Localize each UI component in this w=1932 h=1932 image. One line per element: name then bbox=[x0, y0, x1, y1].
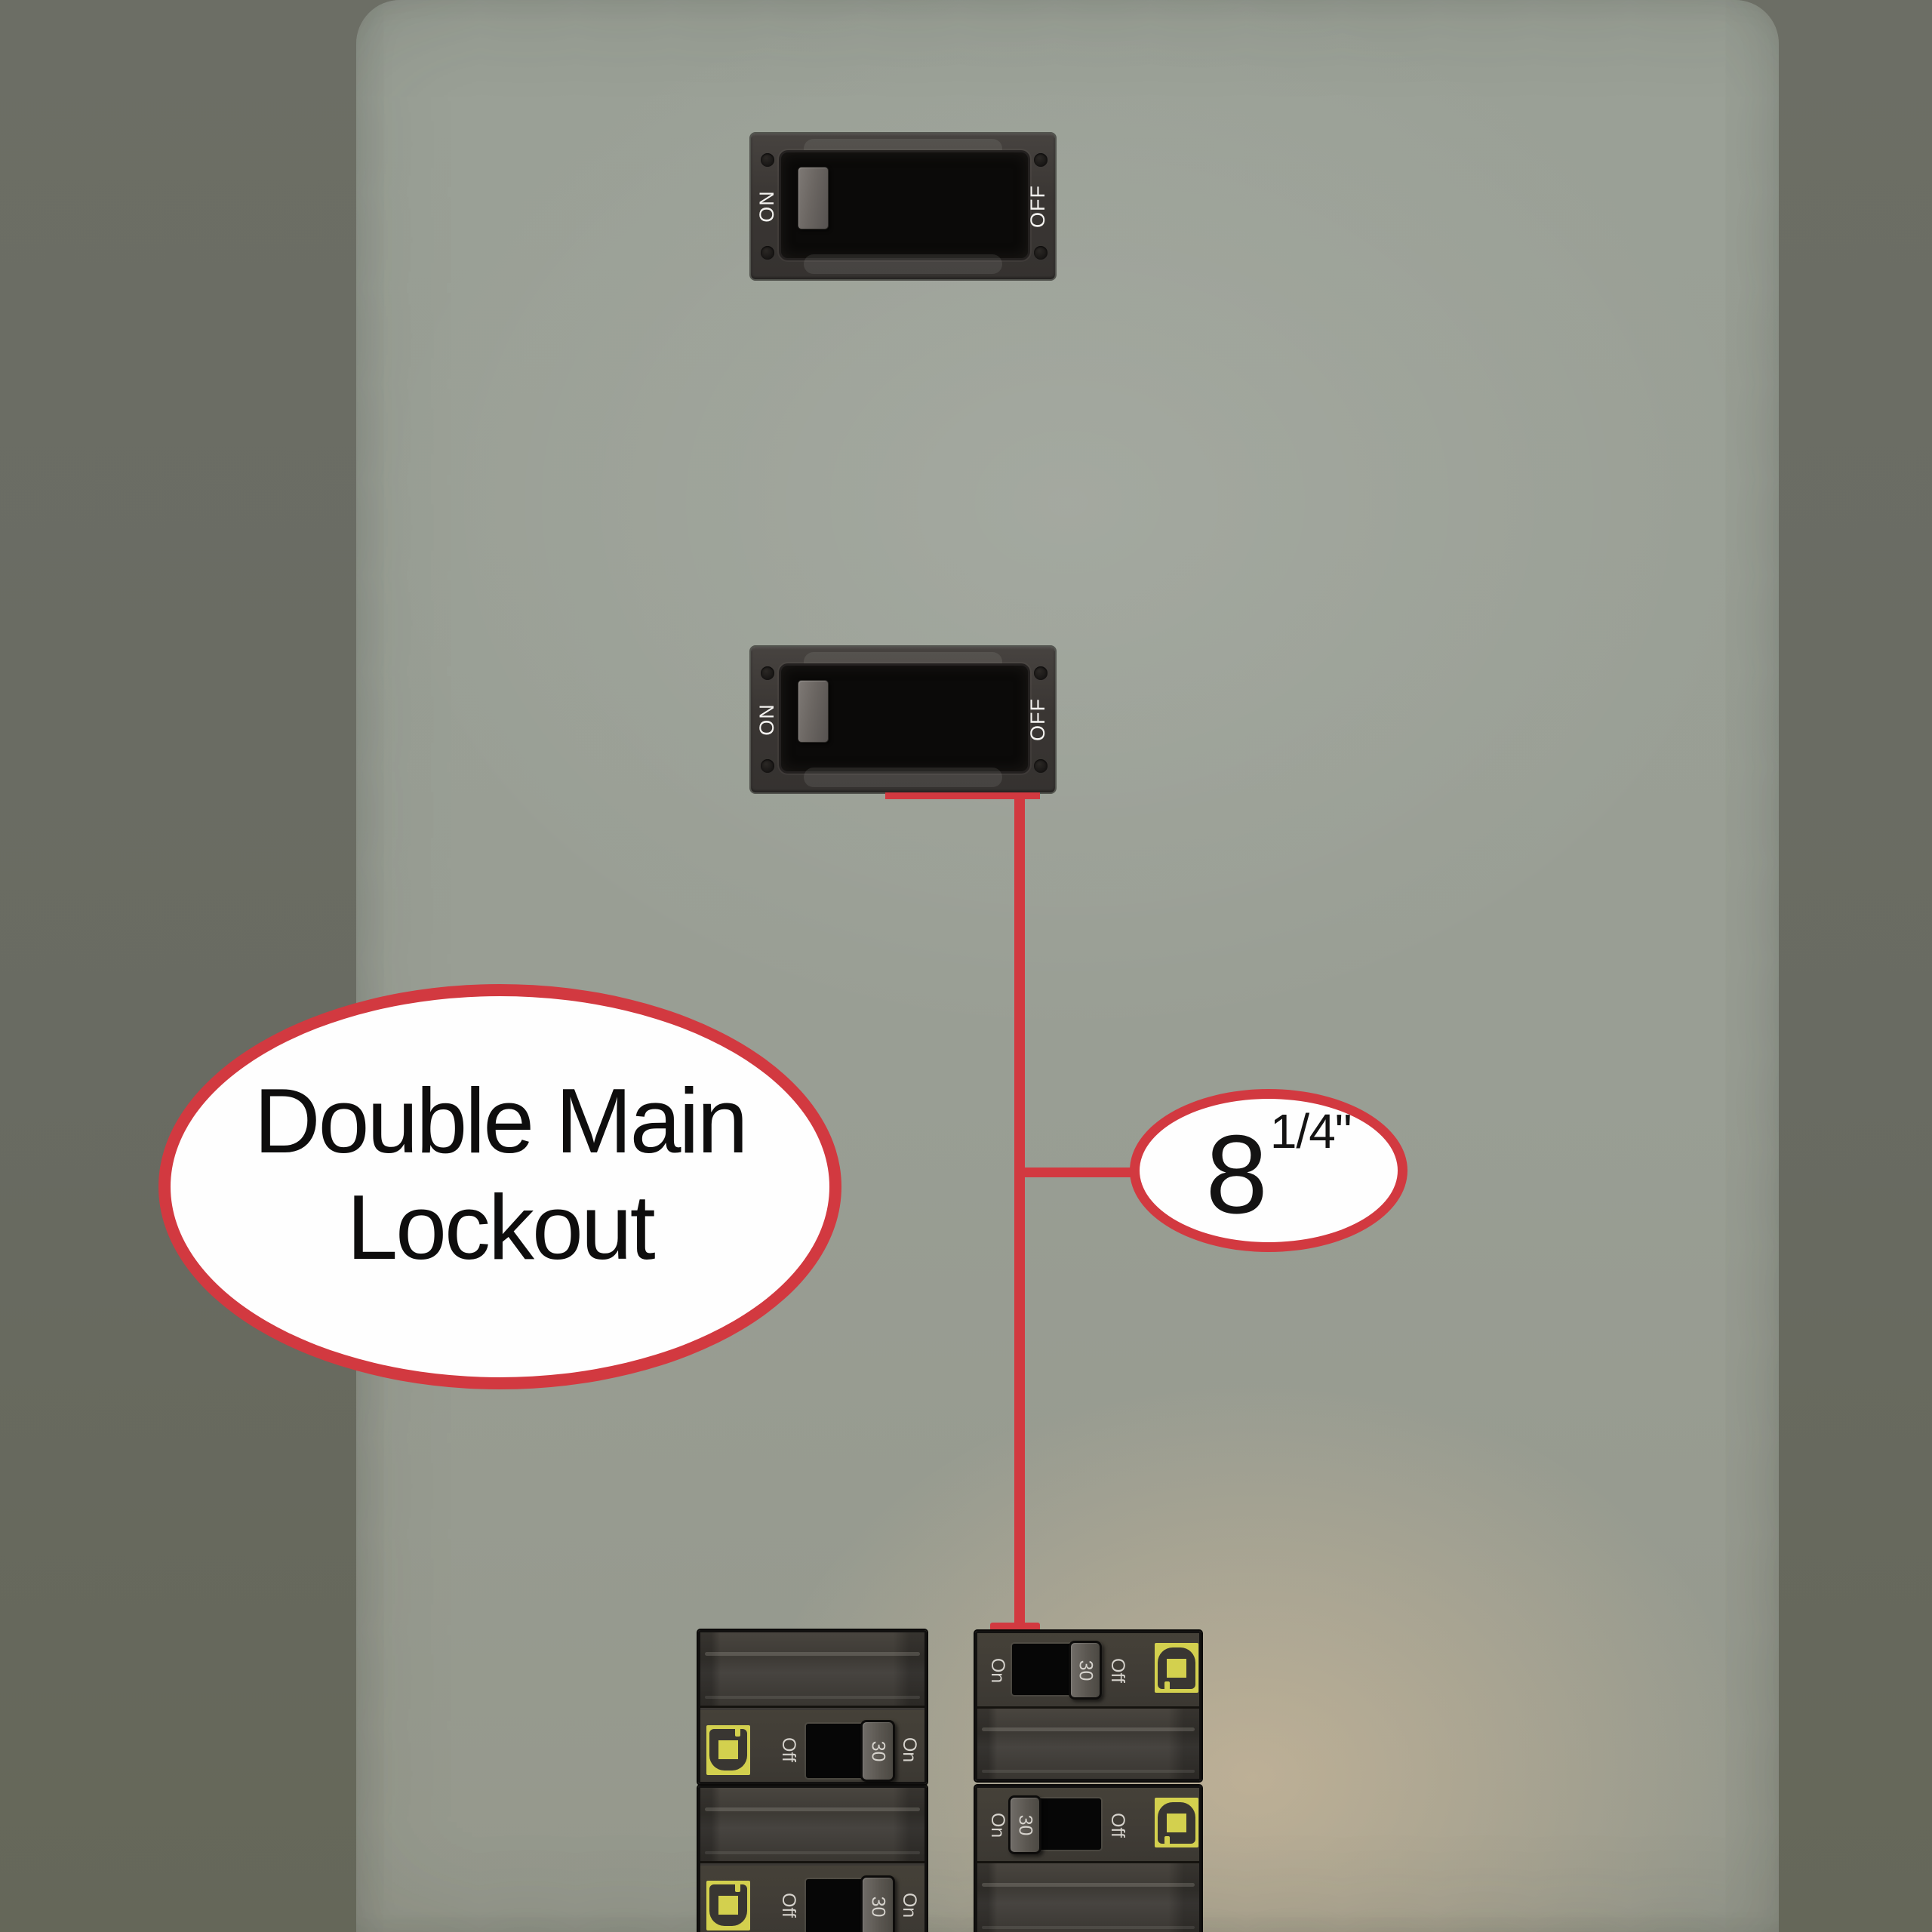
breaker-body bbox=[700, 1788, 924, 1863]
breaker-off-label: Off bbox=[1103, 1797, 1131, 1853]
square-d-letter bbox=[1158, 1647, 1195, 1689]
breaker-toggle-handle: 30 bbox=[860, 1875, 895, 1932]
main-switch-off-label: OFF bbox=[1020, 647, 1055, 792]
square-d-logo bbox=[1155, 1643, 1198, 1693]
main-switch-upper: ON OFF bbox=[751, 134, 1055, 279]
breaker-toggle-handle: 30 bbox=[860, 1720, 895, 1782]
measurement-callout-ellipse: 8 1/4" bbox=[1130, 1089, 1407, 1252]
breaker-toggle-handle: 30 bbox=[1069, 1641, 1102, 1700]
breaker-body bbox=[977, 1706, 1199, 1779]
breaker-amp-label: 30 bbox=[1075, 1660, 1097, 1681]
breaker-off-label: Off bbox=[773, 1721, 803, 1778]
lockout-diagram: ON OFF ON OFF Double Main Lockout bbox=[0, 0, 1932, 1932]
lockout-callout-line2: Lockout bbox=[254, 1174, 746, 1281]
breaker-switch-band: On 30 Off bbox=[977, 1633, 1199, 1706]
square-d-letter bbox=[1158, 1802, 1195, 1844]
main-switch-handle bbox=[798, 680, 829, 743]
square-d-logo bbox=[706, 1881, 750, 1930]
breaker-body bbox=[700, 1632, 924, 1708]
breaker-amp-label: 30 bbox=[867, 1740, 889, 1761]
breaker-switch-band: On 30 Off bbox=[977, 1788, 1199, 1861]
breaker-on-label: On bbox=[895, 1878, 924, 1932]
branch-breaker-left-bottom: Off 30 On bbox=[698, 1786, 927, 1932]
main-switch-rocker-recess bbox=[781, 152, 1028, 258]
measurement-fraction: 1/4" bbox=[1270, 1103, 1352, 1159]
breaker-switch-band: Off 30 On bbox=[700, 1866, 924, 1932]
main-switch-handle bbox=[798, 167, 829, 229]
measurement-number: 8 bbox=[1206, 1119, 1266, 1231]
main-switch-lower: ON OFF bbox=[751, 647, 1055, 792]
breaker-on-label: On bbox=[983, 1642, 1012, 1698]
breaker-body bbox=[977, 1861, 1199, 1932]
lockout-callout-ellipse: Double Main Lockout bbox=[158, 984, 841, 1389]
breaker-off-label: Off bbox=[773, 1876, 803, 1932]
branch-breaker-right-bottom: On 30 Off bbox=[975, 1786, 1201, 1932]
branch-breaker-right-top: On 30 Off bbox=[975, 1631, 1201, 1781]
square-d-logo bbox=[1155, 1798, 1198, 1847]
measurement-line-vertical bbox=[1014, 792, 1025, 1631]
main-switch-rocker-recess bbox=[781, 666, 1028, 771]
breaker-toggle-recess bbox=[806, 1879, 865, 1932]
square-d-logo bbox=[706, 1725, 750, 1775]
breaker-toggle-recess bbox=[806, 1724, 865, 1778]
measurement-line-branch bbox=[1025, 1168, 1131, 1177]
main-switch-on-label: ON bbox=[751, 134, 783, 279]
main-switch-off-label: OFF bbox=[1020, 134, 1055, 279]
breaker-amp-label: 30 bbox=[1014, 1814, 1036, 1835]
breaker-switch-band: Off 30 On bbox=[700, 1710, 924, 1782]
breaker-amp-label: 30 bbox=[867, 1896, 889, 1917]
square-d-letter bbox=[709, 1729, 747, 1770]
breaker-off-label: Off bbox=[1103, 1642, 1131, 1698]
breaker-on-label: On bbox=[895, 1722, 924, 1777]
main-switch-on-label: ON bbox=[751, 647, 783, 792]
lockout-callout-line1: Double Main bbox=[254, 1068, 746, 1174]
lockout-callout-text: Double Main Lockout bbox=[254, 1068, 746, 1281]
breaker-toggle-handle: 30 bbox=[1008, 1795, 1041, 1854]
measurement-line-bottom-bar bbox=[990, 1623, 1040, 1631]
branch-breaker-left-top: Off 30 On bbox=[698, 1630, 927, 1784]
square-d-letter bbox=[709, 1884, 747, 1926]
